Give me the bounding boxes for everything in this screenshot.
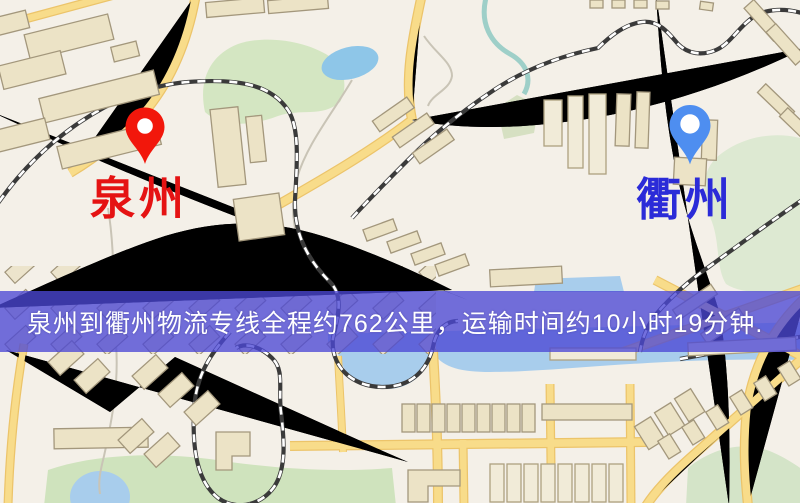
origin-city-label: 泉州 [90, 176, 188, 221]
route-info-banner: 泉州到衢州物流专线全程约762公里，运输时间约10小时19分钟. [0, 291, 800, 352]
map-screenshot: 泉州 衢州 泉州到衢州物流专线全程约762公里，运输时间约10小时19分钟. [0, 0, 800, 503]
destination-pin-shape [670, 105, 711, 164]
origin-pin[interactable] [124, 106, 166, 166]
destination-pin[interactable] [667, 104, 713, 166]
destination-city-label: 衢州 [636, 177, 734, 222]
destination-pin-hole [680, 114, 699, 133]
origin-pin-shape [126, 108, 165, 165]
map-canvas [0, 0, 800, 503]
route-info-text: 泉州到衢州物流专线全程约762公里，运输时间约10小时19分钟. [27, 304, 763, 340]
origin-pin-hole [137, 118, 153, 134]
